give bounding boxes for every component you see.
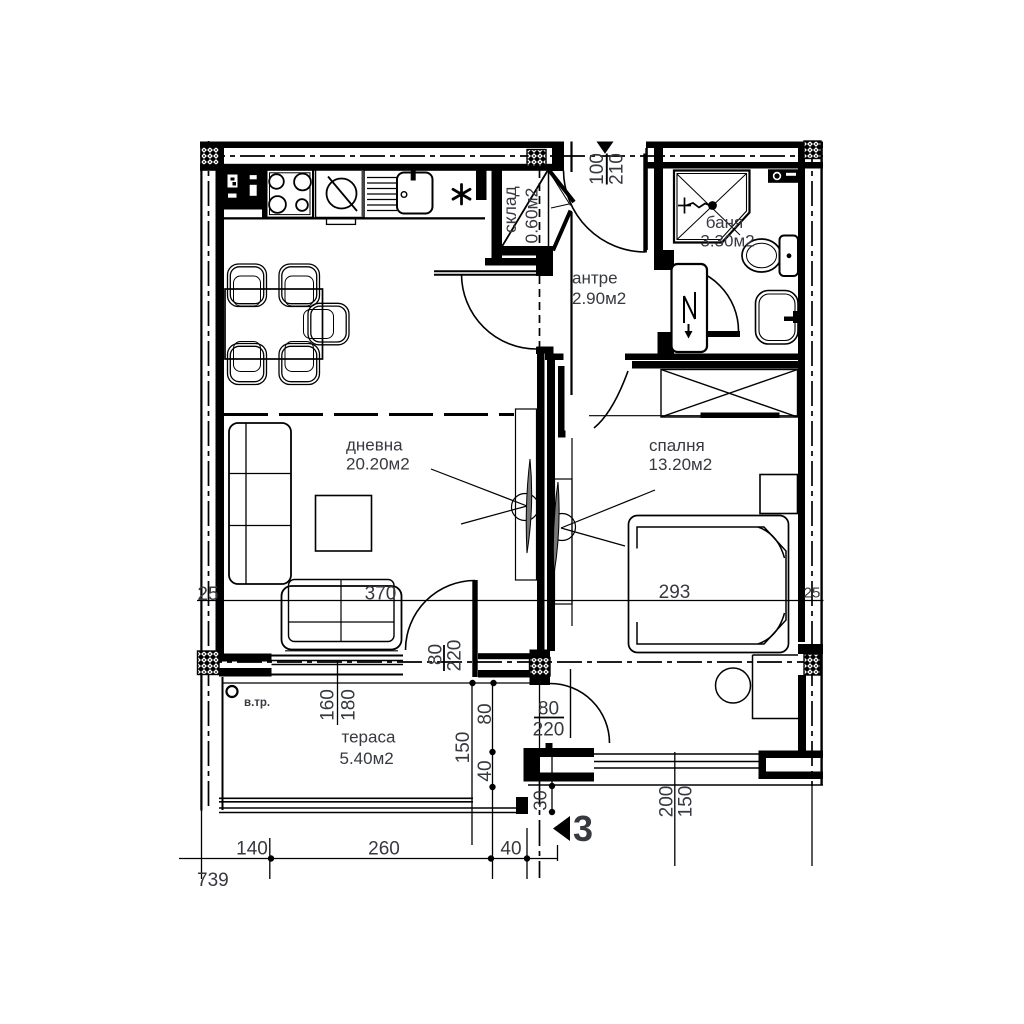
svg-text:150: 150	[453, 732, 474, 764]
svg-text:20.20м2: 20.20м2	[346, 455, 410, 474]
svg-text:293: 293	[659, 582, 691, 603]
svg-text:100: 100	[587, 153, 608, 185]
svg-text:180: 180	[339, 689, 360, 721]
svg-text:25: 25	[197, 584, 218, 605]
svg-text:баня: баня	[706, 213, 743, 232]
svg-text:40: 40	[475, 760, 496, 781]
svg-text:210: 210	[607, 153, 628, 185]
svg-text:0.60м2: 0.60м2	[522, 188, 542, 244]
svg-text:40: 40	[500, 839, 521, 860]
svg-text:25: 25	[804, 585, 821, 602]
svg-text:200: 200	[657, 786, 678, 818]
svg-text:150: 150	[676, 786, 697, 818]
svg-text:3.30м2: 3.30м2	[700, 232, 754, 251]
svg-text:220: 220	[445, 640, 466, 672]
svg-text:160: 160	[318, 689, 339, 721]
svg-text:спалня: спалня	[649, 436, 705, 455]
svg-text:30: 30	[530, 790, 551, 811]
svg-text:80: 80	[475, 703, 496, 724]
svg-text:80: 80	[538, 699, 559, 720]
svg-text:тераса: тераса	[342, 728, 396, 747]
svg-text:3: 3	[573, 808, 593, 849]
svg-text:5.40м2: 5.40м2	[340, 749, 394, 768]
svg-text:220: 220	[533, 720, 565, 741]
svg-text:склад: склад	[500, 186, 520, 233]
svg-text:80: 80	[426, 644, 447, 665]
svg-text:2.90м2: 2.90м2	[572, 289, 626, 308]
svg-text:140: 140	[236, 839, 268, 860]
svg-text:260: 260	[368, 839, 400, 860]
svg-text:в.тр.: в.тр.	[244, 697, 270, 709]
svg-text:13.20м2: 13.20м2	[649, 455, 713, 474]
svg-text:дневна: дневна	[346, 436, 403, 455]
svg-text:739: 739	[197, 870, 229, 891]
svg-text:370: 370	[365, 584, 397, 605]
svg-text:антре: антре	[572, 269, 618, 288]
